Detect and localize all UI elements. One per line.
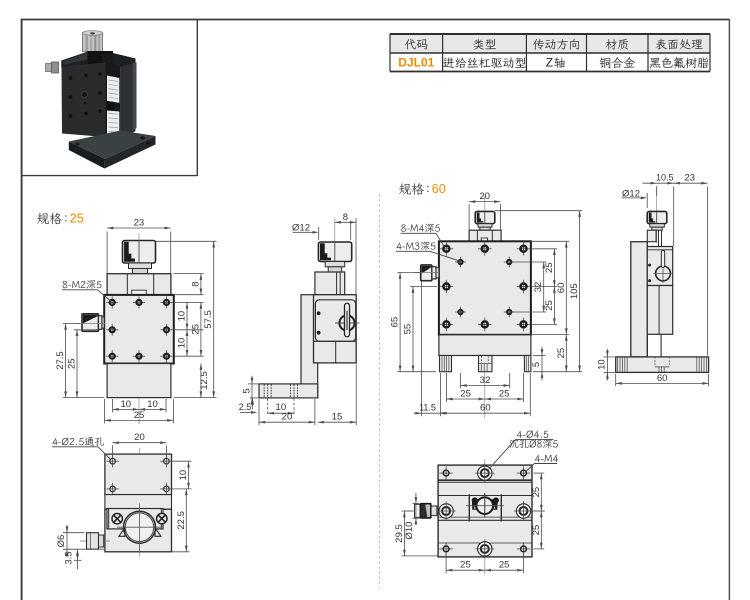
svg-text:10: 10	[597, 359, 608, 370]
svg-text:8: 8	[190, 281, 201, 286]
svg-text:15: 15	[332, 412, 343, 423]
svg-text:10: 10	[178, 470, 189, 481]
svg-text:3.5: 3.5	[63, 551, 74, 564]
svg-text:8: 8	[343, 212, 348, 223]
svg-text:25: 25	[499, 560, 510, 571]
svg-text:20: 20	[479, 191, 490, 202]
svg-text:20: 20	[134, 432, 145, 443]
svg-text:23: 23	[134, 218, 145, 229]
svg-text:10: 10	[121, 399, 132, 410]
svg-text:11.5: 11.5	[419, 403, 436, 413]
svg-text:25: 25	[134, 410, 145, 421]
svg-text:23: 23	[685, 173, 696, 184]
svg-text:10: 10	[177, 338, 188, 349]
svg-text:Ø10: Ø10	[404, 522, 415, 540]
svg-text:10: 10	[177, 311, 188, 322]
svg-text:60: 60	[657, 373, 668, 384]
svg-text:10: 10	[147, 399, 158, 410]
svg-text:25: 25	[544, 262, 555, 273]
svg-text:25: 25	[531, 525, 542, 536]
svg-text:22.5: 22.5	[176, 511, 187, 530]
svg-text:10.5: 10.5	[656, 173, 674, 183]
svg-text:25: 25	[70, 212, 84, 226]
svg-text:105: 105	[569, 283, 580, 299]
svg-text:5: 5	[531, 362, 542, 367]
svg-text:25: 25	[499, 389, 510, 400]
svg-text:60: 60	[556, 283, 567, 294]
svg-text:5: 5	[241, 388, 252, 393]
svg-text:55: 55	[403, 324, 414, 335]
svg-text:60: 60	[432, 182, 446, 196]
svg-text:25: 25	[67, 358, 78, 369]
svg-text:12.5: 12.5	[199, 371, 210, 390]
svg-text:2.5: 2.5	[239, 402, 252, 412]
svg-text:32: 32	[480, 375, 491, 386]
svg-text:27.5: 27.5	[55, 351, 66, 370]
svg-text:57.5: 57.5	[203, 310, 214, 329]
svg-text:25: 25	[531, 487, 542, 498]
svg-text:25: 25	[460, 389, 471, 400]
svg-text:60: 60	[480, 403, 491, 414]
svg-text:32: 32	[533, 282, 544, 293]
svg-text:25: 25	[190, 324, 201, 335]
svg-text:65: 65	[390, 317, 401, 328]
svg-text:25: 25	[460, 560, 471, 571]
svg-text:Ø6: Ø6	[56, 535, 67, 548]
svg-text:20: 20	[282, 412, 293, 423]
svg-text:25: 25	[544, 300, 555, 311]
svg-text:25: 25	[556, 348, 567, 359]
svg-text:Z: Z	[546, 56, 553, 70]
svg-text:DJL01: DJL01	[398, 56, 434, 70]
